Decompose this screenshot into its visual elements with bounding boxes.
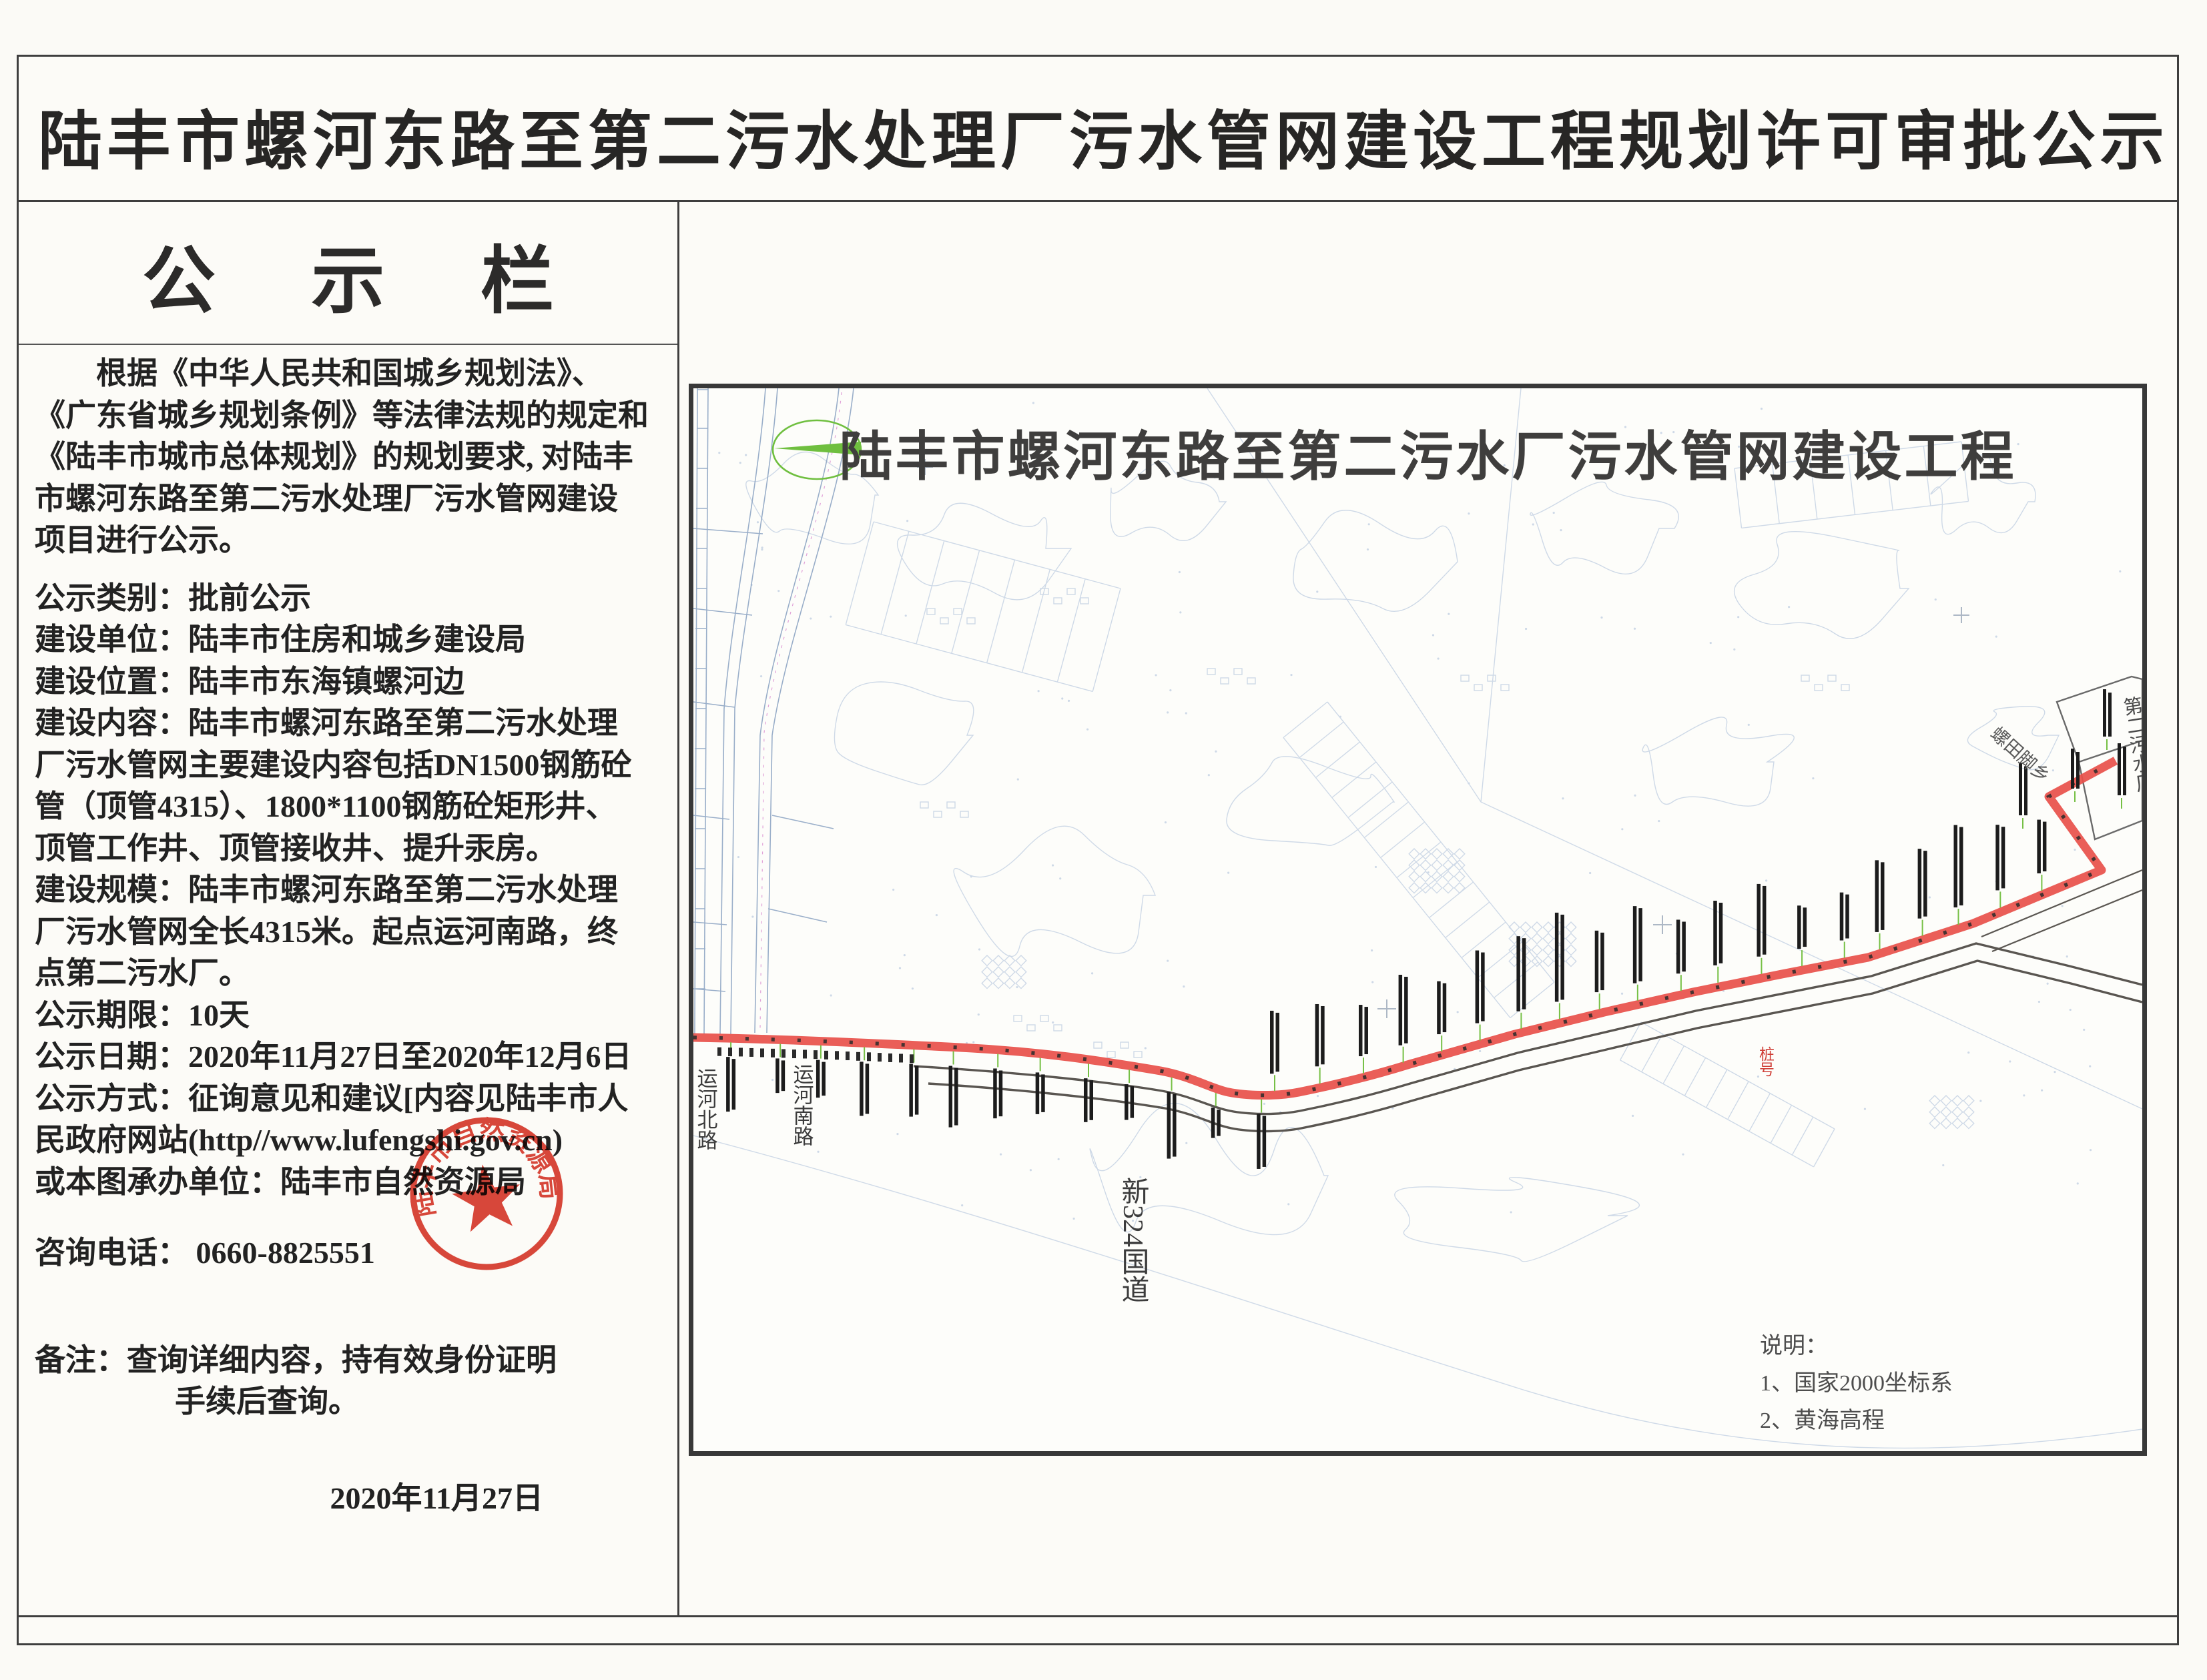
notice-detail-line: 公示期限：10天 bbox=[35, 995, 667, 1037]
notice-panel: 公 示 栏 根据《中华人民共和国城乡规划法》、 《广东省城乡规划条例》等法律法规… bbox=[19, 202, 679, 1615]
notice-detail-line: 公示方式：征询意见和建议[内容见陆丰市人 bbox=[35, 1078, 667, 1120]
notice-detail-line: 建设位置：陆丰市东海镇螺河边 bbox=[35, 661, 667, 703]
notice-paragraph-line: 《陆丰市城市总体规划》的规划要求, 对陆丰 bbox=[35, 436, 667, 478]
map-road-labels: 运河北路 运河南路 新324国道 螺田脚乡 第二污水厂 桩号 bbox=[694, 695, 2143, 1303]
notice-detail-line: 公示类别：批前公示 bbox=[35, 578, 667, 620]
notice-detail-line: 建设单位：陆丰市住房和城乡建设局 bbox=[35, 619, 667, 661]
notice-detail-line: 厂污水管网全长4315米。起点运河南路，终 bbox=[35, 911, 667, 953]
notice-detail-line: 建设内容：陆丰市螺河东路至第二污水处理 bbox=[35, 703, 667, 745]
notice-date: 2020年11月27日 bbox=[35, 1478, 667, 1520]
legend-heading: 说明： bbox=[1760, 1328, 1953, 1365]
page-title: 陆丰市螺河东路至第二污水处理厂污水管网建设工程规划许可审批公示 bbox=[27, 72, 2180, 199]
legend-item: 2、黄海高程 bbox=[1760, 1402, 1953, 1440]
notice-paragraph-line: 市螺河东路至第二污水处理厂污水管网建设 bbox=[35, 478, 667, 520]
content-bottom-divider bbox=[17, 1615, 2177, 1617]
notice-body: 根据《中华人民共和国城乡规划法》、 《广东省城乡规划条例》等法律法规的规定和 《… bbox=[19, 345, 677, 1519]
plan-map: 运河北路 运河南路 新324国道 螺田脚乡 第二污水厂 桩号 陆丰市螺河东路至第… bbox=[689, 384, 2147, 1456]
map-drawing: 运河北路 运河南路 新324国道 螺田脚乡 第二污水厂 桩号 bbox=[693, 388, 2142, 1451]
plant-label: 第二污水厂 bbox=[2119, 695, 2142, 794]
scanned-notice-page: 陆丰市螺河东路至第二污水处理厂污水管网建设工程规划许可审批公示 公 示 栏 根据… bbox=[0, 0, 2207, 1680]
notice-detail-line: 民政府网站(http//www.lufengshi.gov.cn) bbox=[35, 1120, 667, 1162]
chainage-label: 桩号 bbox=[1757, 1046, 1775, 1077]
official-seal: 陆丰市自然资源局 bbox=[387, 1094, 586, 1293]
notice-detail-line: 厂污水管网主要建设内容包括DN1500钢筋砼 bbox=[35, 745, 667, 787]
map-topo-texture bbox=[693, 388, 2142, 1448]
legend-item: 1、国家2000坐标系 bbox=[1760, 1365, 1953, 1402]
note-line: 手续后查询。 bbox=[35, 1381, 667, 1423]
notice-detail-line: 公示日期：2020年11月27日至2020年12月6日 bbox=[35, 1036, 667, 1078]
road-label: 运河南路 bbox=[790, 1064, 814, 1146]
pipeline-route bbox=[693, 761, 2116, 1096]
notice-paragraph-line: 根据《中华人民共和国城乡规划法》、 bbox=[35, 353, 667, 395]
notice-detail-line: 管（顶管4315）、1800*1100钢筋砼矩形井、 bbox=[35, 786, 667, 828]
map-title: 陆丰市螺河东路至第二污水厂污水管网建设工程 bbox=[740, 414, 2116, 491]
road-label: 运河北路 bbox=[694, 1068, 718, 1150]
notice-detail-line: 点第二污水厂。 bbox=[35, 953, 667, 995]
seal-star-icon bbox=[448, 1160, 525, 1234]
notice-paragraph-line: 项目进行公示。 bbox=[35, 520, 667, 562]
notice-panel-heading: 公 示 栏 bbox=[19, 221, 677, 328]
notice-paragraph-line: 《广东省城乡规划条例》等法律法规的规定和 bbox=[35, 395, 667, 437]
note-line: 备注：查询详细内容，持有效身份证明 bbox=[35, 1340, 667, 1382]
notice-detail-line: 顶管工作井、顶管接收井、提升汞房。 bbox=[35, 828, 667, 870]
notice-detail-line: 建设规模：陆丰市螺河东路至第二污水处理 bbox=[35, 869, 667, 911]
road-label: 新324国道 bbox=[1117, 1177, 1149, 1303]
survey-cross-marks bbox=[917, 459, 1969, 1018]
map-legend: 说明： 1、国家2000坐标系 2、黄海高程 bbox=[1760, 1328, 1953, 1440]
